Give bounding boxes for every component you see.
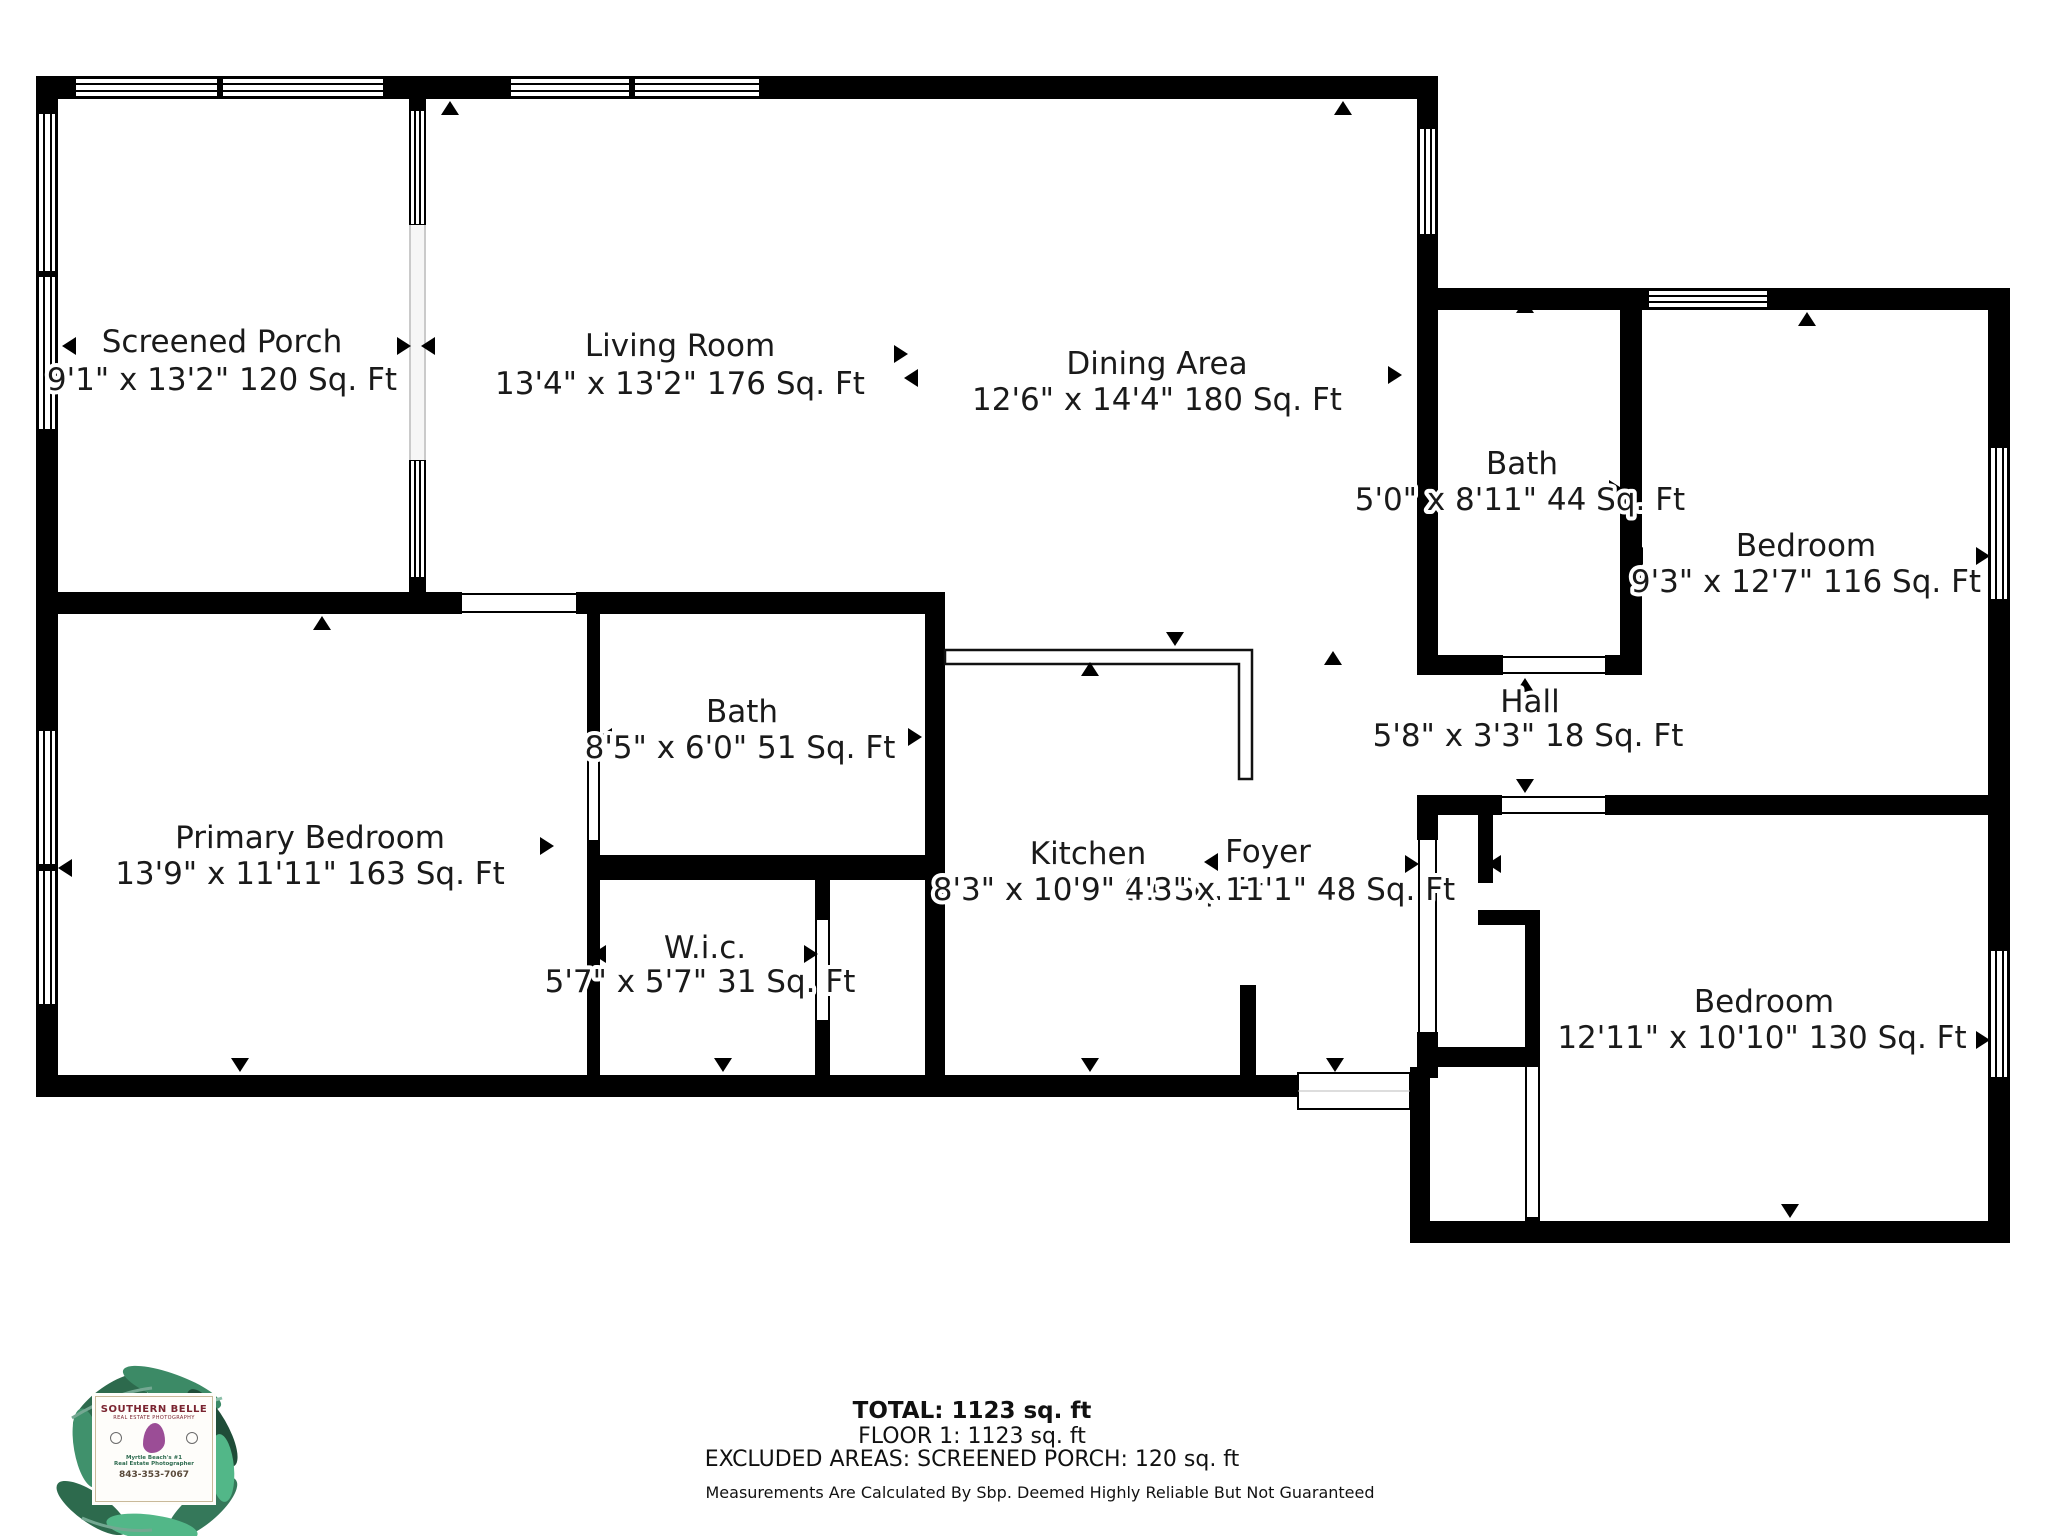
svg-text:Primary Bedroom: Primary Bedroom [175, 820, 445, 856]
window [634, 78, 760, 97]
logo-slogan-line2: Real Estate Photographer [96, 1461, 212, 1467]
room-label-bedroom-lower: Bedroom 12'11" x 10'10" 130 Sq. Ft [1557, 984, 1966, 1056]
room-label-bedroom-right: Bedroom 9'3" x 12'7" 116 Sq. Ft [1631, 528, 1981, 600]
door-opening [462, 592, 576, 614]
svg-text:W.i.c.: W.i.c. [664, 930, 746, 966]
svg-text:Bath: Bath [706, 694, 778, 730]
svg-text:5'7" x 5'7" 31 Sq. Ft: 5'7" x 5'7" 31 Sq. Ft [545, 964, 856, 1000]
window [1648, 290, 1768, 308]
excluded-areas-text: EXCLUDED AREAS: SCREENED PORCH: 120 sq. … [705, 1447, 1240, 1472]
window [38, 730, 56, 865]
room-label-living-room: Living Room 13'4" x 13'2" 176 Sq. Ft [495, 328, 865, 402]
window [75, 78, 218, 97]
window [410, 110, 425, 225]
door-opening [1416, 840, 1439, 1032]
svg-text:Hall: Hall [1500, 684, 1560, 720]
door-opening [1502, 795, 1605, 815]
logo-badge-icon [186, 1432, 198, 1444]
room-label-hall: Hall 5'8" x 3'3" 18 Sq. Ft [1373, 684, 1684, 754]
window [38, 870, 56, 1005]
svg-text:13'9" x 11'11" 163 Sq. Ft: 13'9" x 11'11" 163 Sq. Ft [115, 856, 505, 892]
svg-text:8'5" x 6'0" 51 Sq. Ft: 8'5" x 6'0" 51 Sq. Ft [585, 730, 896, 766]
svg-text:Screened Porch: Screened Porch [102, 324, 343, 360]
svg-text:Living Room: Living Room [585, 328, 775, 364]
floor-plan-drawing: Screened Porch 9'1" x 13'2" 120 Sq. Ft L… [0, 0, 2048, 1536]
room-label-dining-area: Dining Area 12'6" x 14'4" 180 Sq. Ft [972, 346, 1342, 418]
screen-opening [409, 225, 426, 460]
logo-badge-icon [110, 1432, 122, 1444]
door-opening [1524, 1067, 1541, 1217]
window [1990, 950, 2008, 1078]
entry-door-opening [1298, 1073, 1410, 1109]
svg-text:13'4" x 13'2" 176 Sq. Ft: 13'4" x 13'2" 176 Sq. Ft [495, 366, 865, 402]
svg-text:5'0" x 8'11" 44 Sq. Ft: 5'0" x 8'11" 44 Sq. Ft [1355, 482, 1685, 518]
window [1990, 447, 2008, 600]
logo-bird-icon [143, 1423, 165, 1453]
room-label-bath-main: Bath 8'5" x 6'0" 51 Sq. Ft [585, 694, 896, 766]
logo-card: SOUTHERN BELLE REAL ESTATE PHOTOGRAPHY M… [95, 1396, 213, 1502]
svg-text:Kitchen: Kitchen [1030, 836, 1147, 872]
logo-phone-number: 843-353-7067 [96, 1470, 212, 1480]
svg-text:9'1" x 13'2" 120 Sq. Ft: 9'1" x 13'2" 120 Sq. Ft [47, 362, 397, 398]
total-area-text: TOTAL: 1123 sq. ft [853, 1398, 1092, 1424]
floor-plan-page: Screened Porch 9'1" x 13'2" 120 Sq. Ft L… [0, 0, 2048, 1536]
svg-text:Bedroom: Bedroom [1736, 528, 1876, 564]
svg-text:5'8" x 3'3" 18 Sq. Ft: 5'8" x 3'3" 18 Sq. Ft [1373, 718, 1684, 754]
window [222, 78, 384, 97]
svg-text:4'3" x 11'1" 48 Sq. Ft: 4'3" x 11'1" 48 Sq. Ft [1125, 872, 1455, 908]
svg-text:Bedroom: Bedroom [1694, 984, 1834, 1020]
room-label-primary-bedroom: Primary Bedroom 13'9" x 11'11" 163 Sq. F… [115, 820, 505, 892]
door-opening [1478, 883, 1493, 910]
window [510, 78, 630, 97]
floor-area-text: FLOOR 1: 1123 sq. ft [858, 1424, 1086, 1449]
window [38, 113, 56, 272]
window [1419, 128, 1436, 235]
svg-text:Dining Area: Dining Area [1066, 346, 1247, 382]
svg-text:Bath: Bath [1486, 446, 1558, 482]
window [38, 276, 56, 430]
photographer-logo: SOUTHERN BELLE REAL ESTATE PHOTOGRAPHY M… [52, 1358, 248, 1536]
door-opening [1503, 655, 1605, 675]
svg-text:9'3" x 12'7" 116 Sq. Ft: 9'3" x 12'7" 116 Sq. Ft [1631, 564, 1981, 600]
kitchen-counter [945, 650, 1252, 779]
svg-text:12'11" x 10'10" 130 Sq. Ft: 12'11" x 10'10" 130 Sq. Ft [1557, 1020, 1966, 1056]
svg-text:Foyer: Foyer [1225, 834, 1311, 870]
window [410, 460, 425, 578]
logo-brand-name: SOUTHERN BELLE [96, 1404, 212, 1415]
svg-text:12'6" x 14'4" 180 Sq. Ft: 12'6" x 14'4" 180 Sq. Ft [972, 382, 1342, 418]
logo-brand-tagline: REAL ESTATE PHOTOGRAPHY [96, 1415, 212, 1421]
room-label-screened-porch: Screened Porch 9'1" x 13'2" 120 Sq. Ft [47, 324, 397, 398]
disclaimer-text: Measurements Are Calculated By Sbp. Deem… [705, 1483, 1374, 1502]
